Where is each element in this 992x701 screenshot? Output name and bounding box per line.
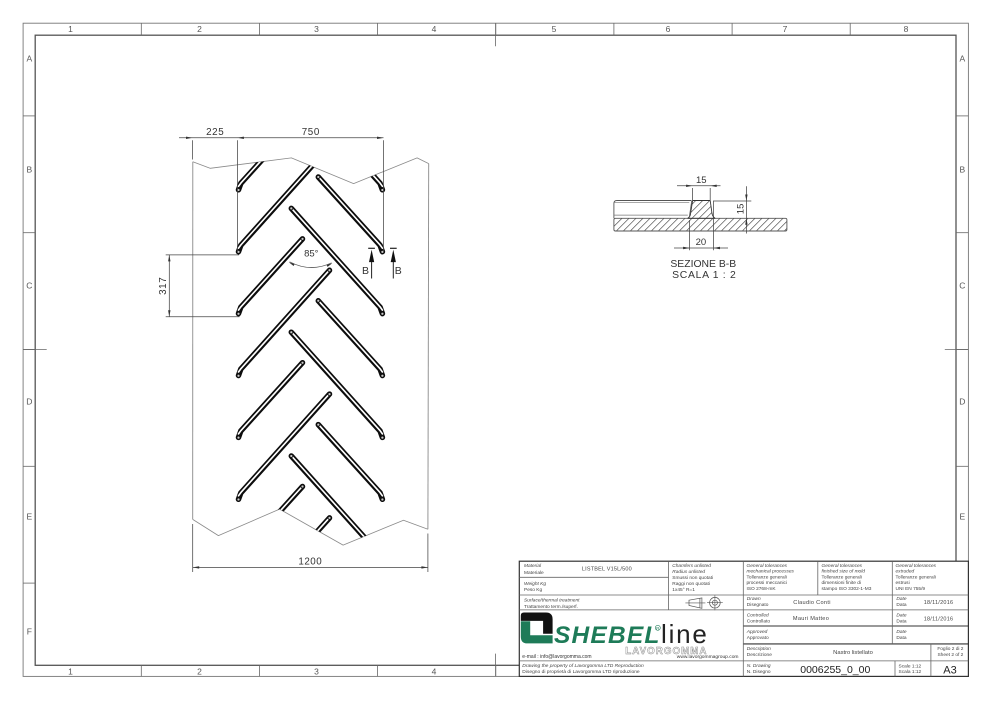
svg-text:Smussi non quotati: Smussi non quotati [672,575,713,581]
svg-text:1: 1 [68,666,73,676]
svg-text:mechanical processes: mechanical processes [747,568,795,574]
svg-text:E: E [26,512,32,522]
svg-text:Peso Kg: Peso Kg [524,587,542,593]
svg-text:Weight Kg: Weight Kg [524,581,546,587]
svg-text:Data: Data [896,602,906,608]
svg-text:6: 6 [666,24,671,34]
svg-text:N. Drawing: N. Drawing [747,663,771,669]
svg-text:225: 225 [206,127,224,138]
svg-text:stampo ISO 3302-1-M3: stampo ISO 3302-1-M3 [822,586,872,592]
svg-text:Nastro listellato: Nastro listellato [833,650,873,656]
svg-text:UNI EN 755/9: UNI EN 755/9 [896,586,926,592]
svg-text:Date: Date [896,629,906,635]
svg-text:Sheet 2 of 2: Sheet 2 of 2 [937,652,963,658]
svg-text:Chamfers unlisted: Chamfers unlisted [672,563,711,569]
svg-text:A: A [26,54,32,64]
svg-text:Date: Date [896,613,906,619]
svg-text:15: 15 [736,204,747,215]
svg-text:dimensioni finite di: dimensioni finite di [822,580,861,586]
svg-text:General tolerances: General tolerances [822,563,863,569]
svg-text:D: D [959,397,965,407]
svg-text:processi meccanici: processi meccanici [747,580,788,586]
svg-text:B: B [959,165,965,175]
svg-text:8: 8 [904,24,909,34]
svg-text:A: A [959,54,965,64]
svg-text:Material: Material [524,563,542,569]
svg-text:C: C [959,281,965,291]
svg-text:Radius unlisted: Radius unlisted [672,569,705,575]
svg-text:F: F [27,627,32,637]
svg-text:B: B [362,265,369,277]
svg-text:85°: 85° [304,249,319,260]
svg-text:18/11/2016: 18/11/2016 [924,616,954,622]
svg-text:estrusi: estrusi [896,580,910,586]
svg-text:General tolerances: General tolerances [747,563,788,569]
svg-text:18/11/2016: 18/11/2016 [924,600,954,606]
svg-text:750: 750 [302,127,320,138]
svg-text:7: 7 [783,24,788,34]
svg-text:Surface/thermal treatment: Surface/thermal treatment [524,598,580,604]
svg-text:Materiale: Materiale [524,570,544,576]
svg-text:Description: Description [747,646,771,652]
svg-text:Scale 1:12: Scale 1:12 [899,663,922,669]
svg-text:B: B [395,265,402,277]
svg-text:D: D [26,397,32,407]
svg-text:N. Disegno: N. Disegno [747,669,771,675]
svg-text:4: 4 [432,666,437,676]
svg-text:Mauri Matteo: Mauri Matteo [793,616,829,622]
svg-text:Drawing the property of Lavorg: Drawing the property of Lavorgomma LTD R… [522,663,644,669]
svg-text:Foglio 2 di 2: Foglio 2 di 2 [937,646,963,652]
svg-text:Tolleranze generali: Tolleranze generali [896,574,936,580]
svg-text:2: 2 [197,666,202,676]
svg-text:LISTBEL V15L/500: LISTBEL V15L/500 [582,567,632,573]
svg-text:Data: Data [896,619,906,625]
svg-text:Date: Date [896,596,906,602]
svg-text:C: C [26,281,32,291]
svg-text:1200: 1200 [298,557,322,568]
svg-text:317: 317 [158,277,169,295]
svg-text:SEZIONE B-B: SEZIONE B-B [670,259,736,270]
svg-text:3: 3 [314,24,319,34]
svg-text:Disegno di proprietà di Lavorg: Disegno di proprietà di Lavorgomma LTD r… [522,669,640,675]
svg-text:Raggi non quotati: Raggi non quotati [672,581,710,587]
svg-text:Approvato: Approvato [747,635,769,641]
svg-text:SCALA 1 : 2: SCALA 1 : 2 [672,270,736,281]
svg-text:2: 2 [197,24,202,34]
svg-text:Tolleranze generali: Tolleranze generali [822,574,862,580]
svg-text:Disegnato: Disegnato [747,602,769,608]
svg-text:3: 3 [314,666,319,676]
svg-text:Scala 1:12: Scala 1:12 [899,669,922,675]
svg-text:e-mail : info@lavorgomma.com: e-mail : info@lavorgomma.com [522,654,591,660]
svg-text:ISO 2768-mK: ISO 2768-mK [747,586,777,592]
svg-text:0006255_0_00: 0006255_0_00 [800,664,870,676]
svg-text:Approved: Approved [746,629,768,635]
svg-text:General tolerances: General tolerances [896,563,937,569]
svg-text:E: E [959,512,965,522]
svg-text:Claudio Conti: Claudio Conti [793,600,830,606]
svg-text:Descrizione: Descrizione [747,652,772,658]
svg-text:Drawn: Drawn [747,596,761,602]
svg-text:1x45° R=1: 1x45° R=1 [672,587,695,593]
svg-text:Controllato: Controllato [747,619,771,625]
svg-text:15: 15 [696,175,707,186]
svg-text:R: R [656,626,659,631]
svg-text:B: B [26,165,32,175]
svg-text:1: 1 [68,24,73,34]
svg-text:Trattamento term./superf.: Trattamento term./superf. [524,604,578,610]
svg-text:www.lavorgommagroup.com: www.lavorgommagroup.com [677,654,739,660]
svg-text:20: 20 [696,237,707,248]
svg-text:4: 4 [432,24,437,34]
svg-text:Controlled: Controlled [747,613,769,619]
svg-text:A3: A3 [943,665,956,677]
svg-text:line: line [661,619,709,649]
svg-text:5: 5 [552,24,557,34]
svg-text:finished size of mold: finished size of mold [822,568,866,574]
svg-text:Tolleranze generali: Tolleranze generali [747,574,787,580]
svg-text:Data: Data [896,635,906,641]
svg-text:extruded: extruded [896,568,915,574]
